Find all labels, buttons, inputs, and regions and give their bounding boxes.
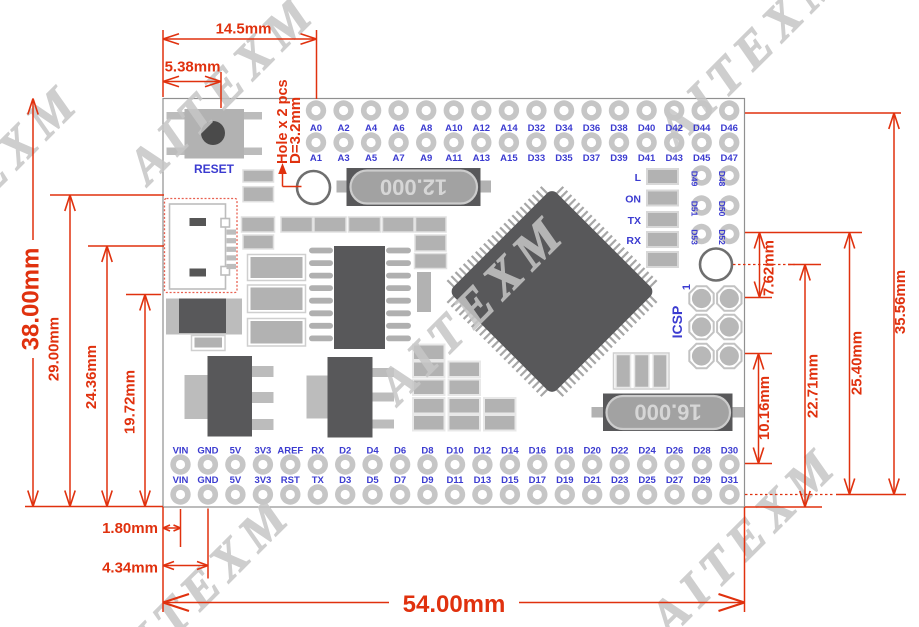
svg-text:5V: 5V <box>230 475 242 486</box>
svg-text:A10: A10 <box>445 123 462 134</box>
svg-text:D37: D37 <box>583 153 600 164</box>
svg-text:A2: A2 <box>338 123 350 134</box>
svg-text:VIN: VIN <box>173 446 189 457</box>
svg-text:TX: TX <box>312 475 325 486</box>
svg-text:D40: D40 <box>638 123 655 134</box>
svg-text:4.34mm: 4.34mm <box>102 560 158 577</box>
svg-text:D8: D8 <box>421 446 433 457</box>
svg-text:A15: A15 <box>500 153 518 164</box>
svg-text:D23: D23 <box>611 475 628 486</box>
svg-text:38.00mm: 38.00mm <box>18 248 45 351</box>
svg-text:3V3: 3V3 <box>254 475 271 486</box>
svg-text:D30: D30 <box>721 446 738 457</box>
svg-text:VIN: VIN <box>173 475 189 486</box>
svg-text:D27: D27 <box>666 475 683 486</box>
svg-text:16.000: 16.000 <box>634 400 701 425</box>
svg-text:D48: D48 <box>717 171 727 187</box>
svg-text:19.72mm: 19.72mm <box>122 370 139 434</box>
svg-text:D11: D11 <box>447 475 465 486</box>
svg-text:D41: D41 <box>638 153 656 164</box>
svg-text:D12: D12 <box>474 446 491 457</box>
svg-text:D36: D36 <box>583 123 600 134</box>
svg-text:3V3: 3V3 <box>254 446 271 457</box>
svg-text:A7: A7 <box>393 153 405 164</box>
svg-text:D50: D50 <box>717 201 727 217</box>
svg-text:D47: D47 <box>720 153 737 164</box>
svg-text:D2: D2 <box>339 446 351 457</box>
svg-text:A14: A14 <box>500 123 518 134</box>
svg-text:D=3.2mm: D=3.2mm <box>287 97 304 164</box>
svg-text:D34: D34 <box>555 123 573 134</box>
svg-text:D29: D29 <box>693 475 710 486</box>
svg-text:A0: A0 <box>310 123 322 134</box>
svg-text:D39: D39 <box>610 153 627 164</box>
svg-text:D28: D28 <box>693 446 710 457</box>
svg-text:A3: A3 <box>338 153 350 164</box>
svg-text:A5: A5 <box>365 153 378 164</box>
svg-text:RESET: RESET <box>194 162 235 176</box>
svg-text:D19: D19 <box>556 475 573 486</box>
svg-text:RST: RST <box>281 475 300 486</box>
svg-text:D26: D26 <box>666 446 683 457</box>
svg-text:D15: D15 <box>501 475 519 486</box>
svg-text:TX: TX <box>628 215 641 227</box>
svg-text:D24: D24 <box>638 446 656 457</box>
svg-text:25.40mm: 25.40mm <box>849 331 866 395</box>
svg-text:A8: A8 <box>420 123 432 134</box>
svg-text:24.36mm: 24.36mm <box>83 345 100 409</box>
svg-text:D44: D44 <box>693 123 711 134</box>
svg-text:14.5mm: 14.5mm <box>216 21 272 38</box>
svg-text:D4: D4 <box>367 446 380 457</box>
svg-text:D49: D49 <box>690 171 700 187</box>
svg-text:D5: D5 <box>367 475 380 486</box>
svg-text:AREF: AREF <box>277 446 303 457</box>
svg-text:D51: D51 <box>690 201 700 217</box>
svg-text:D6: D6 <box>394 446 406 457</box>
svg-text:D22: D22 <box>611 446 628 457</box>
svg-text:D45: D45 <box>693 153 711 164</box>
svg-text:D43: D43 <box>665 153 682 164</box>
svg-text:1.80mm: 1.80mm <box>102 520 158 537</box>
svg-text:RX: RX <box>311 446 325 457</box>
svg-text:D25: D25 <box>638 475 656 486</box>
svg-text:ICSP: ICSP <box>669 306 685 339</box>
svg-text:A1: A1 <box>310 153 323 164</box>
svg-text:A11: A11 <box>445 153 463 164</box>
svg-text:D10: D10 <box>446 446 463 457</box>
svg-text:GND: GND <box>197 446 218 457</box>
svg-text:29.00mm: 29.00mm <box>46 317 63 381</box>
svg-text:D14: D14 <box>501 446 519 457</box>
svg-text:A9: A9 <box>420 153 432 164</box>
svg-text:D9: D9 <box>421 475 433 486</box>
svg-text:D31: D31 <box>721 475 739 486</box>
svg-text:D13: D13 <box>474 475 491 486</box>
svg-text:D42: D42 <box>665 123 682 134</box>
svg-text:D53: D53 <box>690 229 700 245</box>
svg-text:A12: A12 <box>473 123 490 134</box>
svg-text:A4: A4 <box>365 123 378 134</box>
svg-text:D21: D21 <box>583 475 601 486</box>
svg-text:22.71mm: 22.71mm <box>805 354 822 418</box>
svg-text:D20: D20 <box>583 446 600 457</box>
svg-text:D7: D7 <box>394 475 406 486</box>
svg-text:D35: D35 <box>555 153 573 164</box>
svg-text:5V: 5V <box>230 446 242 457</box>
svg-text:D18: D18 <box>556 446 573 457</box>
svg-text:D38: D38 <box>610 123 627 134</box>
svg-text:A13: A13 <box>473 153 490 164</box>
svg-text:D3: D3 <box>339 475 351 486</box>
svg-text:RX: RX <box>626 235 641 247</box>
svg-text:D33: D33 <box>528 153 545 164</box>
svg-text:D17: D17 <box>529 475 546 486</box>
svg-text:D16: D16 <box>529 446 546 457</box>
svg-text:5.38mm: 5.38mm <box>165 59 221 76</box>
svg-text:D32: D32 <box>528 123 545 134</box>
svg-text:L: L <box>635 172 642 184</box>
svg-text:54.00mm: 54.00mm <box>403 591 506 618</box>
svg-text:GND: GND <box>197 475 218 486</box>
svg-text:35.56mm: 35.56mm <box>892 270 909 334</box>
svg-text:D46: D46 <box>720 123 737 134</box>
svg-text:7.62mm: 7.62mm <box>761 240 778 296</box>
svg-text:A6: A6 <box>393 123 405 134</box>
svg-text:D52: D52 <box>717 229 727 245</box>
svg-text:12.000: 12.000 <box>380 175 447 200</box>
svg-text:10.16mm: 10.16mm <box>756 376 773 440</box>
svg-text:1: 1 <box>681 284 693 290</box>
svg-text:ON: ON <box>625 194 641 206</box>
